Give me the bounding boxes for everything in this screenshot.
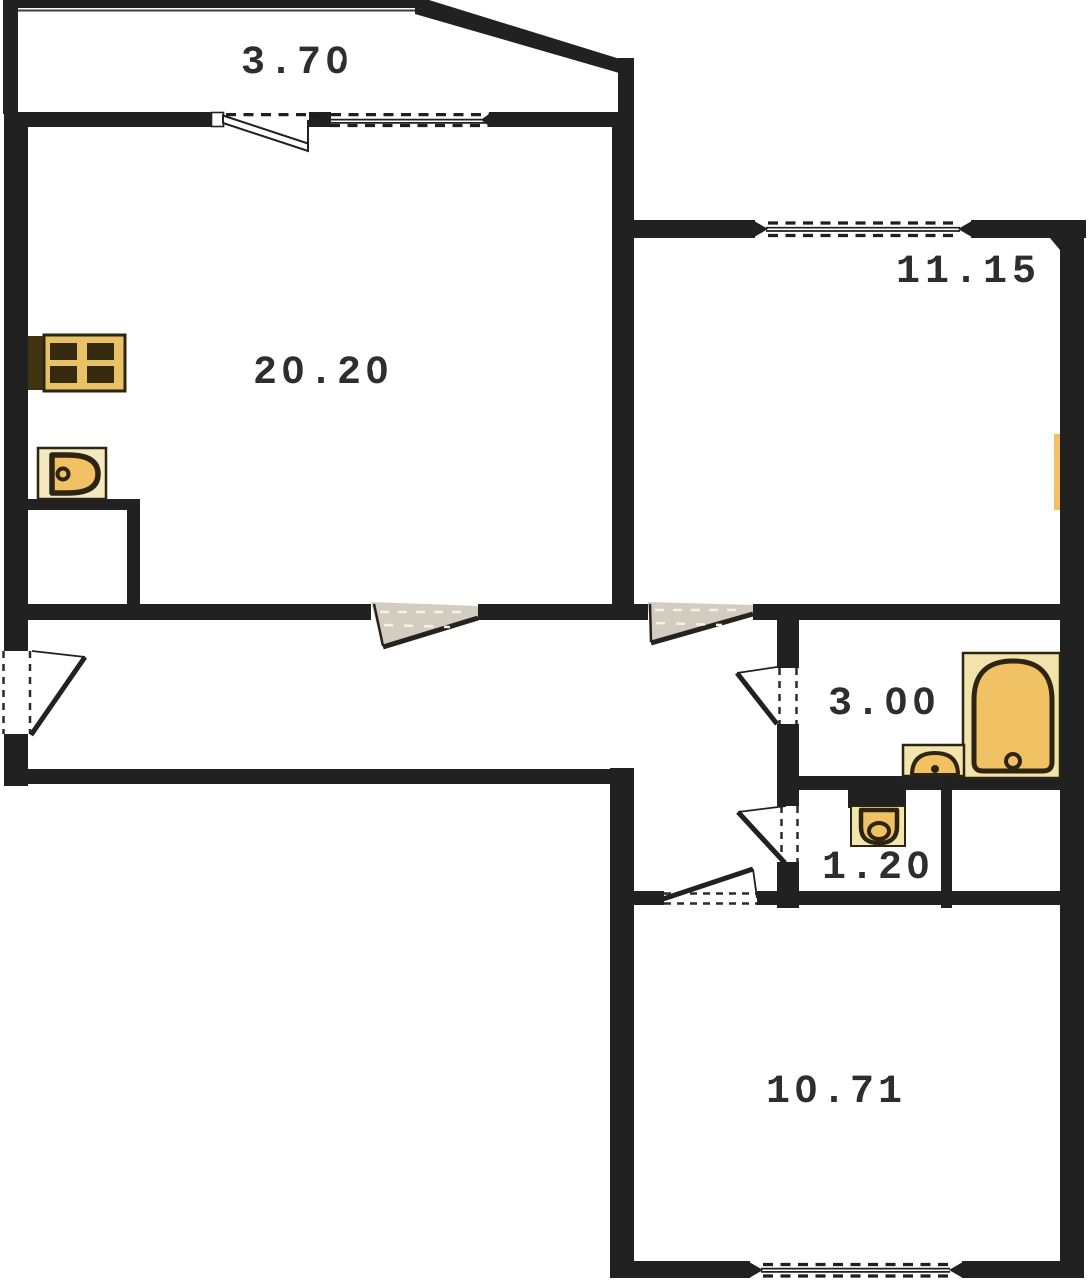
svg-text:20.20: 20.20	[253, 351, 393, 396]
svg-text:11.15: 11.15	[896, 250, 1041, 295]
svg-text:10.71: 10.71	[766, 1070, 906, 1115]
